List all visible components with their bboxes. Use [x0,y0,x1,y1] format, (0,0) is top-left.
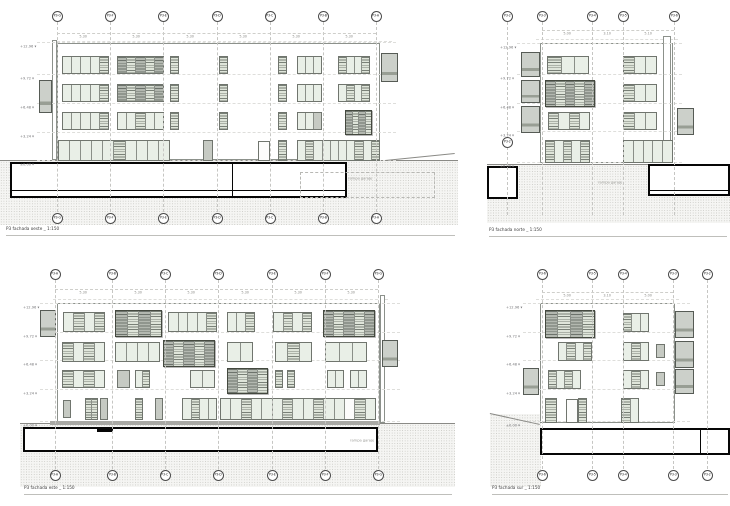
glass-pane [641,371,648,388]
balcony [675,311,694,338]
level-marker: +9.72 ▾ [506,327,545,346]
louver-pane [565,371,573,388]
caption-top-right: P3 fachada norte _ 1:150 [489,228,542,232]
window [548,370,581,389]
drawing-sheet: P3-GP3-GP3-FP3-FP3-EP3-EP3-DP3-DP3-CP3-C… [0,0,730,506]
window [545,398,557,423]
window [578,398,587,423]
grid-marker-label: P3-3 [670,272,677,275]
grid-marker: P3-4 [618,269,629,280]
glass-pane [624,343,632,360]
balcony [675,369,694,394]
caption-bottom-left: P3 fachada este _ 1:150 [24,486,75,490]
caption-top-left: P3 fachada oeste _ 1:150 [6,227,59,231]
dimension-label: 3.10 [588,286,628,305]
grid-marker: P3-5 [587,269,598,280]
shutter-pane [657,345,664,357]
caption-rule [24,494,452,495]
window [566,399,578,423]
louver-pane [584,343,591,360]
shutter-window [545,310,595,338]
grid-marker-label: P3-5 [589,473,596,476]
glass-pane [624,371,632,388]
level-line [523,360,690,361]
window [558,342,592,361]
louver-pane [579,399,586,422]
grid-line [707,280,708,469]
grid-marker: P3-2 [702,269,713,280]
shutter-pane [657,373,664,385]
level-line [523,389,690,390]
glass-pane [632,314,640,331]
glass-pane [573,371,580,388]
glass-pane [641,343,648,360]
glass-pane [576,343,584,360]
section-cut [540,428,730,455]
door-pane [567,400,577,422]
grid-marker: P3-2 [702,470,713,481]
grid-marker-label: P3-5 [589,272,596,275]
level-marker: +12.96 ▾ [506,298,551,317]
section-divider [700,430,702,453]
louver-pane [549,371,557,388]
dimension-label: 5.00 [547,286,587,305]
grid-marker-label: P3-2 [704,272,711,275]
grid-marker: P3-3 [668,470,679,481]
elevation-panel-bottom-right: P3-6P3-6P3-5P3-5P3-4P3-4P3-3P3-3P3-2P3-2… [0,0,730,506]
grid-marker-label: P3-4 [620,473,627,476]
grid-marker-label: P3-6 [539,272,546,275]
glass-pane [557,371,565,388]
dark-shutter-pane [571,311,583,337]
glass-pane [641,314,648,331]
louver-pane [558,311,570,337]
level-marker: +3.24 ▾ [506,384,545,403]
grid-line [623,280,624,469]
caption-rule [492,494,728,495]
window [623,370,649,389]
grid-line [592,280,593,469]
grid-line [673,280,674,469]
grid-marker-label: P3-4 [620,272,627,275]
louver-pane [632,343,640,360]
glass-pane [631,399,639,422]
window [623,342,649,361]
dimension-label: 5.00 [628,286,668,305]
caption-rule [489,236,727,237]
grid-marker: P3-6 [537,269,548,280]
window [656,344,665,358]
grid-marker-label: P3-3 [670,473,677,476]
louver-pane [624,314,632,331]
grid-marker: P3-4 [618,470,629,481]
glass-pane [559,343,567,360]
level-marker: +6.48 ▾ [506,355,545,374]
window [656,372,665,386]
louver-pane [546,399,556,422]
caption-bottom-right: P3 fachada sur _ 1:150 [492,486,540,490]
louver-pane [567,343,575,360]
grid-marker-label: P3-6 [539,473,546,476]
level-marker: ±0.00 ▾ [506,416,545,435]
balcony [675,341,694,368]
louver-pane [632,371,640,388]
grid-marker: P3-3 [668,269,679,280]
grid-marker: P3-6 [537,470,548,481]
grid-marker: P3-5 [587,470,598,481]
caption-rule [6,235,455,236]
window [623,313,649,332]
grid-marker-label: P3-2 [704,473,711,476]
